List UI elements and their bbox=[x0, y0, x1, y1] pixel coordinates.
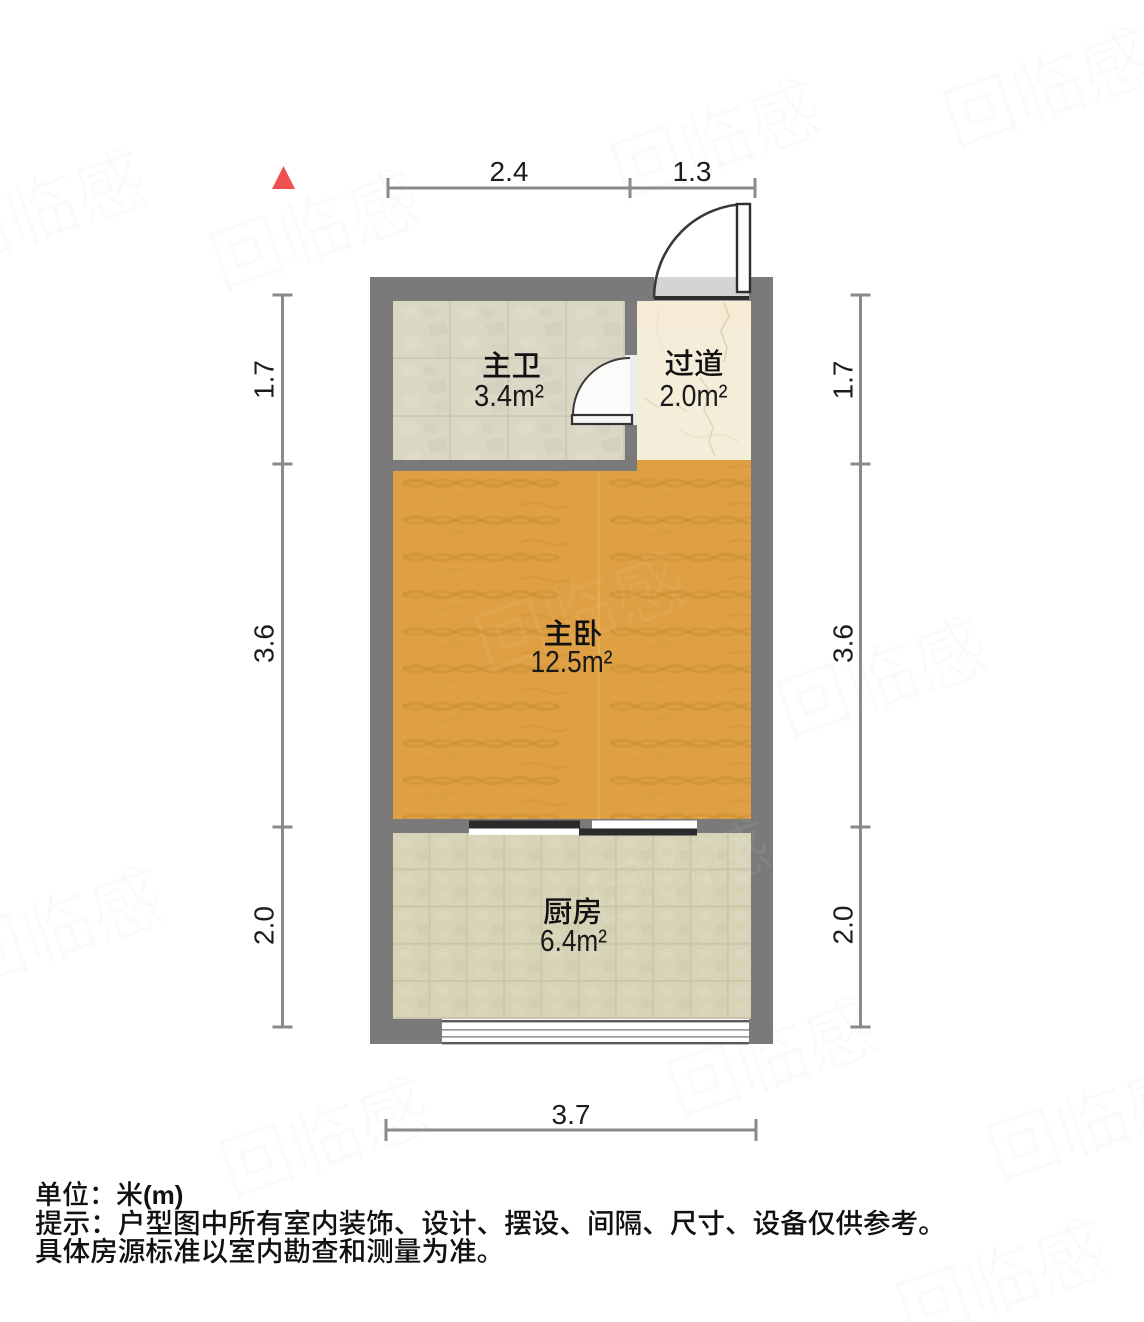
svg-text:3.6: 3.6 bbox=[827, 624, 858, 663]
svg-text:1.7: 1.7 bbox=[248, 360, 279, 399]
svg-text:3.4m²: 3.4m² bbox=[474, 378, 544, 413]
svg-text:1.7: 1.7 bbox=[827, 361, 858, 400]
svg-text:3.6: 3.6 bbox=[248, 624, 279, 663]
svg-text:6.4m²: 6.4m² bbox=[540, 923, 607, 958]
svg-text:2.4: 2.4 bbox=[490, 156, 529, 187]
svg-text:12.5m²: 12.5m² bbox=[531, 644, 613, 679]
svg-text:3.7: 3.7 bbox=[552, 1099, 591, 1130]
svg-text:2.0: 2.0 bbox=[248, 906, 279, 945]
svg-text:1.3: 1.3 bbox=[673, 156, 712, 187]
svg-text:2.0m²: 2.0m² bbox=[660, 378, 728, 413]
svg-text:(m): (m) bbox=[143, 1180, 183, 1210]
svg-text:2.0: 2.0 bbox=[827, 906, 858, 945]
